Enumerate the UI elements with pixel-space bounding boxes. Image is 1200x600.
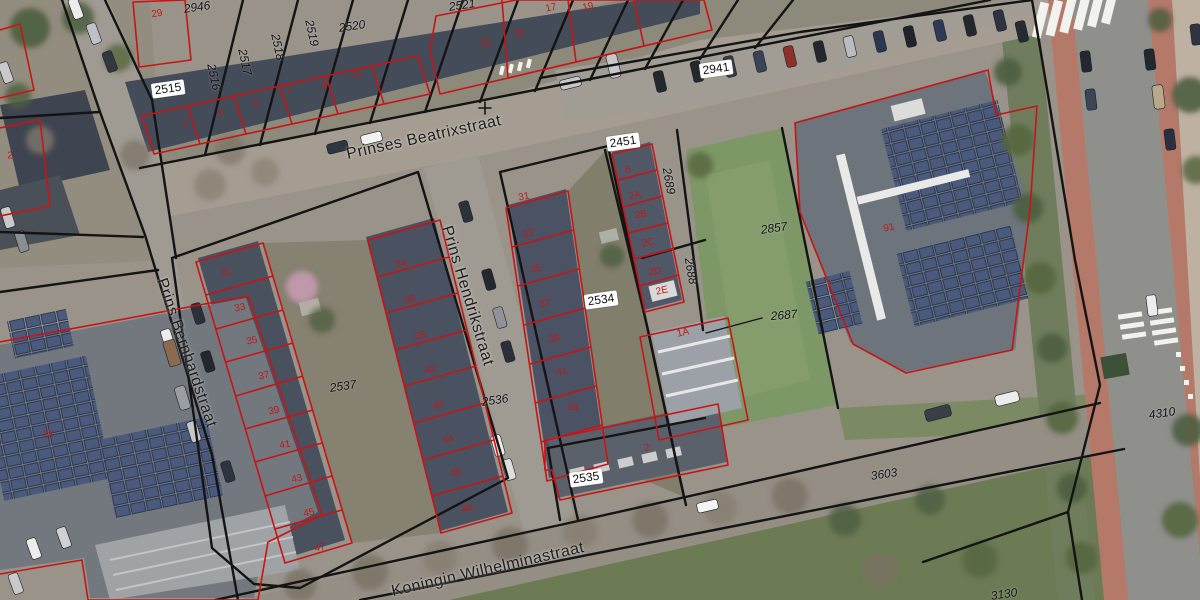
- tree: [1046, 402, 1078, 434]
- car: [1164, 128, 1176, 150]
- tree: [1148, 8, 1172, 32]
- tree: [772, 478, 808, 514]
- tree: [251, 158, 279, 186]
- car: [1144, 48, 1156, 70]
- tree: [26, 126, 54, 154]
- car: [1080, 50, 1092, 72]
- tree: [829, 504, 861, 536]
- aerial-map-svg: [0, 0, 1200, 600]
- tree: [309, 307, 335, 333]
- tree: [687, 152, 713, 178]
- tree: [352, 554, 388, 590]
- tree: [1024, 262, 1056, 294]
- tree: [1162, 502, 1198, 538]
- aerial-photo-layer: [0, 0, 1200, 600]
- car: [1146, 294, 1158, 316]
- tree: [1037, 333, 1067, 363]
- tree: [994, 58, 1022, 86]
- tree: [863, 553, 897, 587]
- tree: [1013, 193, 1043, 223]
- tree-blossom: [286, 271, 318, 303]
- tree: [10, 8, 50, 48]
- dumpster: [1100, 353, 1129, 379]
- tree: [194, 169, 226, 201]
- car: [1085, 88, 1097, 110]
- tree: [120, 140, 150, 170]
- tree: [1002, 124, 1034, 156]
- tree: [1066, 542, 1098, 574]
- tree: [423, 541, 457, 575]
- map-viewport[interactable]: Prinses BeatrixstraatPrins Hendrikstraat…: [0, 0, 1200, 600]
- tree: [600, 244, 624, 268]
